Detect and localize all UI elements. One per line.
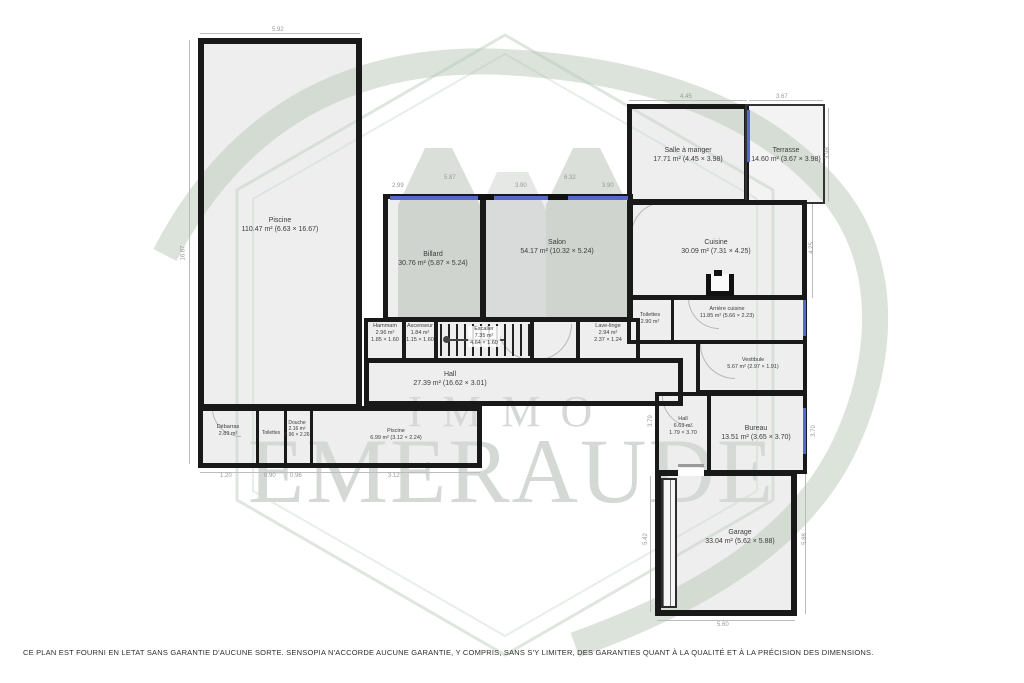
room-dims: 1.15 × 1.60: [406, 337, 434, 344]
wall-partition-toilettes: [671, 300, 674, 340]
fireplace-icon: [706, 274, 734, 296]
room-name: Piscine: [370, 428, 422, 435]
room-dims: 4.64 × 1.60: [470, 340, 498, 347]
room-name: Hammam: [371, 323, 399, 330]
stairs-start-dot: [443, 336, 450, 343]
room-area: 5.67 m² (2.97 × 1.91): [727, 364, 779, 371]
room-area: 30.09 m² (7.31 × 4.25): [681, 247, 750, 256]
room-label-cuisine: Cuisine 30.09 m² (7.31 × 4.25): [681, 238, 750, 256]
room-name: Arrière cuisine: [700, 306, 754, 313]
dimension-label: 0.90: [264, 473, 276, 479]
room-name: Piscine: [242, 216, 319, 225]
room-label-arriere-cuisine: Arrière cuisine 11.85 m² (5.66 × 2.23): [700, 306, 754, 320]
wall-partition-annex-1: [256, 410, 259, 464]
room-name: Vestibule: [727, 357, 779, 364]
room-area: 33.04 m² (5.62 × 5.88): [705, 537, 774, 546]
dim-line-piscine-top: [200, 33, 360, 34]
room-name: Terrasse: [751, 146, 820, 155]
dimension-label: 4.45: [680, 94, 692, 100]
room-name: Hall: [669, 416, 697, 423]
room-name: Ascenseur: [406, 323, 434, 330]
room-label-piscine: Piscine 110.47 m² (6.63 × 16.67): [242, 216, 319, 234]
room-label-escalier: Escalier 7.35 m² 4.64 × 1.60: [468, 326, 500, 347]
window-salon-top-2: [566, 196, 628, 200]
room-area: 7.35 m²: [470, 333, 498, 340]
dimension-label: 3.98: [825, 147, 831, 159]
room-label-vestibule: Vestibule 5.67 m² (2.97 × 1.91): [727, 357, 779, 371]
room-label-hall: Hall 27.39 m² (16.62 × 3.01): [413, 370, 486, 388]
floor-plan-page: IMMO EMERAUDE: [0, 0, 1024, 683]
room-label-salon: Salon 54.17 m² (10.32 × 5.24): [520, 238, 593, 256]
window-bureau-right: [803, 408, 806, 454]
room-area: 2.94 m²: [594, 330, 622, 337]
dimension-label: 4.25: [809, 242, 815, 254]
room-area: 17.71 m² (4.45 × 3.98): [653, 155, 722, 164]
room-label-ascenseur: Ascenseur 1.84 m² 1.15 × 1.60: [406, 323, 434, 344]
dim-line-piscine-left: [189, 40, 190, 464]
room-name: Hall: [413, 370, 486, 379]
room-dims: 2.37 × 1.24: [594, 337, 622, 344]
room-label-bureau: Bureau 13.51 m² (3.65 × 3.70): [721, 424, 790, 442]
dim-line-sam-top: [629, 100, 747, 101]
dimension-label: 3.90: [602, 183, 614, 189]
dim-line-garage-bottom: [657, 620, 795, 621]
room-label-hammam: Hammam 2.96 m² 1.85 × 1.60: [371, 323, 399, 344]
dimension-label: 3.67: [776, 94, 788, 100]
room-dims: 1.85 × 1.60: [371, 337, 399, 344]
wall-salon: [481, 194, 633, 322]
wall-hall: [364, 358, 683, 406]
room-area: 6.99 m² (3.12 × 2.24): [370, 435, 422, 442]
room-area: 6.63 m²: [669, 423, 697, 430]
room-label-billard: Billard 30.76 m² (5.87 × 5.24): [398, 250, 467, 268]
room-name: Cuisine: [681, 238, 750, 247]
dimension-label: 2.99: [392, 183, 404, 189]
dimension-label: 3.12: [388, 473, 400, 479]
room-name: Garage: [705, 528, 774, 537]
room-area: 2.96 m²: [371, 330, 399, 337]
dimension-label: 5.42: [643, 533, 649, 545]
window-salon-top-1: [492, 196, 548, 200]
room-name: Débarras: [217, 424, 240, 431]
dimension-label: 3.90: [515, 183, 527, 189]
window-terrasse-left: [747, 110, 750, 162]
room-area: 2.90 m²: [640, 319, 660, 326]
room-area: 2.89 m²: [217, 431, 240, 438]
wall-pillar-2: [548, 194, 568, 200]
dim-line-garage-left: [650, 476, 651, 612]
disclaimer-text: CE PLAN EST FOURNI EN LETAT SANS GARANTI…: [23, 648, 1003, 657]
room-area: 30.76 m² (5.87 × 5.24): [398, 259, 467, 268]
room-name: Billard: [398, 250, 467, 259]
room-area: 1.84 m²: [406, 330, 434, 337]
room-name: Toilettes: [262, 430, 280, 436]
wall-partition-annex-3: [310, 410, 313, 464]
dimension-label: 1.20: [220, 473, 232, 479]
room-label-lave-linge: Lave-linge 2.94 m² 2.37 × 1.24: [594, 323, 622, 344]
room-label-toilettes-cuisine: Toilettes 2.90 m²: [640, 312, 660, 326]
dimension-label: 5.87: [444, 175, 456, 181]
room-area: 11.85 m² (5.66 × 2.23): [700, 313, 754, 320]
wall-pillar-1: [478, 194, 494, 200]
room-label-toilettes-piscine: Toilettes: [262, 430, 280, 436]
room-name: Salon: [520, 238, 593, 247]
dim-line-terrasse-top: [749, 100, 823, 101]
window-vestibule-right: [803, 300, 806, 336]
wall-annex: [198, 406, 482, 468]
room-area: 14.60 m² (3.67 × 3.98): [751, 155, 820, 164]
dimension-label: 16.67: [181, 245, 187, 260]
garage-door-icon: [661, 478, 677, 608]
dimension-label: 0.96: [290, 473, 302, 479]
room-label-piscine-petite: Piscine 6.99 m² (3.12 × 2.24): [370, 428, 422, 442]
room-label-terrasse: Terrasse 14.60 m² (3.67 × 3.98): [751, 146, 820, 164]
room-label-debarras: Débarras 2.89 m²: [217, 424, 240, 438]
dimension-label: 6.32: [564, 175, 576, 181]
room-name: Salle à manger: [653, 146, 722, 155]
room-area: 54.17 m² (10.32 × 5.24): [520, 247, 593, 256]
dimension-label: 5.92: [272, 27, 284, 33]
room-dims: 1.79 × 3.70: [669, 430, 697, 437]
room-label-hall2: Hall 6.63 m² 1.79 × 3.70: [669, 416, 697, 437]
garage-entry-threshold: [678, 464, 704, 467]
room-label-douche: Douche 2.16 m² 0.96 × 2.26: [284, 420, 309, 438]
room-name: Toilettes: [640, 312, 660, 319]
dimension-label: 5.88: [802, 533, 808, 545]
dimension-label: 3.70: [811, 425, 817, 437]
dimension-label: 3.79: [648, 415, 654, 427]
room-area: 27.39 m² (16.62 × 3.01): [413, 379, 486, 388]
window-billard-top: [390, 196, 478, 200]
dimension-label: 5.60: [717, 622, 729, 628]
room-name: Escalier: [470, 326, 498, 333]
room-area: 13.51 m² (3.65 × 3.70): [721, 433, 790, 442]
dim-line-annex-bottom: [200, 472, 480, 473]
room-name: Bureau: [721, 424, 790, 433]
room-label-salle-a-manger: Salle à manger 17.71 m² (4.45 × 3.98): [653, 146, 722, 164]
fireplace-nub: [714, 270, 722, 276]
room-dims: 0.96 × 2.26: [284, 432, 309, 438]
room-name: Lave-linge: [594, 323, 622, 330]
garage-entry-gap: [678, 468, 704, 476]
room-area: 110.47 m² (6.63 × 16.67): [242, 225, 319, 234]
room-label-garage: Garage 33.04 m² (5.62 × 5.88): [705, 528, 774, 546]
